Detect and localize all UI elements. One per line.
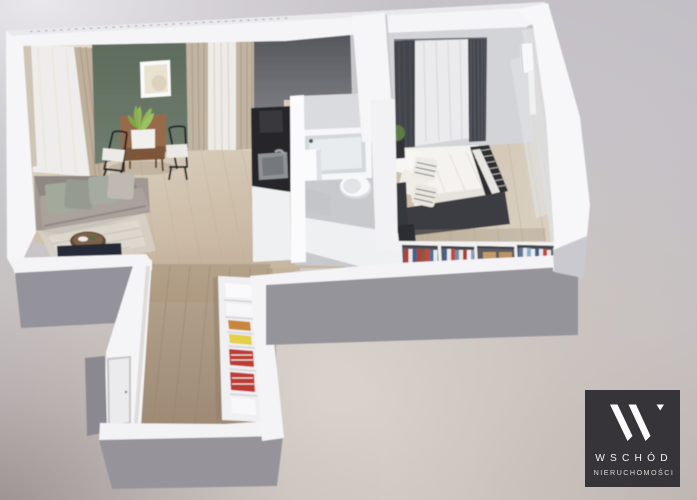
- svg-text:NIERUCHOMOŚCI: NIERUCHOMOŚCI: [594, 468, 675, 477]
- svg-text:WSCHÓD: WSCHÓD: [595, 451, 673, 464]
